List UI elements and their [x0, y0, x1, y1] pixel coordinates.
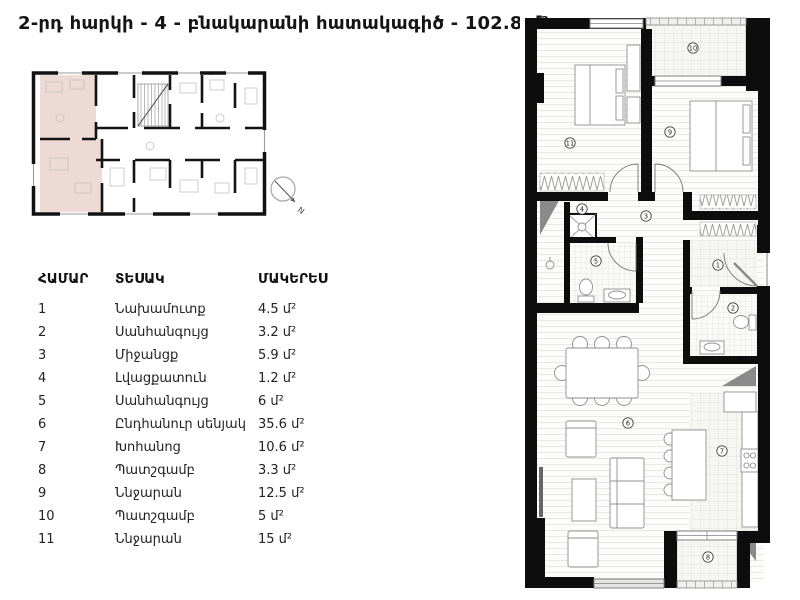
mini-floor-plan: [30, 68, 270, 220]
table-row: 6Ընդհանուր սենյակ35.6 մ²: [38, 413, 368, 436]
armchair: [566, 421, 596, 457]
room-marker-number: 9: [668, 128, 672, 136]
table-cell-number: 7: [38, 440, 115, 455]
fridge: [724, 392, 756, 412]
room-marker-number: 10: [689, 44, 697, 52]
sofa: [610, 458, 644, 528]
table-cell-type: Միջանցք: [115, 348, 258, 363]
washing-machine: [568, 214, 596, 240]
table-cell-type: Ննջարան: [115, 486, 258, 501]
table-row: 4Լվացքատուն1.2 մ²: [38, 367, 368, 390]
room-marker-number: 1: [716, 261, 720, 269]
tv: [539, 467, 543, 517]
toilet-tank: [578, 296, 594, 302]
table-cell-area: 15 մ²: [258, 532, 368, 547]
room-marker-number: 8: [706, 553, 710, 561]
table-cell-number: 10: [38, 509, 115, 524]
room-area-table: ՀԱՄԱՐ ՏԵՍԱԿ ՄԱԿԵՐԵՍ 1Նախամուտք4.5 մ²2Սան…: [38, 271, 368, 551]
table-cell-type: Պատշգամբ: [115, 463, 258, 478]
table-cell-type: Խոհանոց: [115, 440, 258, 455]
table-row: 1Նախամուտք4.5 մ²: [38, 298, 368, 321]
table-header-row: ՀԱՄԱՐ ՏԵՍԱԿ ՄԱԿԵՐԵՍ: [38, 271, 368, 298]
compass-icon: N: [266, 174, 316, 224]
room-marker-number: 11: [566, 139, 574, 147]
table-cell-area: 35.6 մ²: [258, 417, 368, 432]
table-cell-number: 8: [38, 463, 115, 478]
room-marker-number: 2: [731, 304, 735, 312]
table-cell-type: Սանհանգույց: [115, 325, 258, 340]
table-cell-number: 6: [38, 417, 115, 432]
room-marker-number: 6: [626, 419, 630, 427]
table-row: 3Միջանցք5.9 մ²: [38, 344, 368, 367]
table-row: 11Ննջարան15 մ²: [38, 528, 368, 551]
compass-north-label: N: [296, 205, 306, 216]
sink: [704, 343, 720, 351]
area-table-body: 1Նախամուտք4.5 մ²2Սանհանգույց3.2 մ²3Միջան…: [38, 298, 368, 551]
toilet-tank: [749, 315, 756, 330]
table-cell-area: 4.5 մ²: [258, 302, 368, 317]
highlighted-apartment: [40, 75, 102, 212]
coffee-table: [572, 479, 596, 521]
room-marker-number: 3: [644, 212, 648, 220]
table-cell-type: Պատշգամբ: [115, 509, 258, 524]
nightstand: [627, 97, 640, 123]
table-cell-type: Ընդհանուր սենյակ: [115, 417, 258, 432]
table-header-type: ՏԵՍԱԿ: [115, 271, 258, 298]
table-cell-type: Նախամուտք: [115, 302, 258, 317]
room-marker-number: 4: [580, 205, 584, 213]
table-cell-area: 3.2 մ²: [258, 325, 368, 340]
table-cell-number: 5: [38, 394, 115, 409]
table-cell-area: 5 մ²: [258, 509, 368, 524]
table-cell-area: 12.5 մ²: [258, 486, 368, 501]
table-row: 8Պատշգամբ3.3 մ²: [38, 459, 368, 482]
main-floor-plan: 1234567891011: [520, 15, 792, 590]
table-cell-number: 11: [38, 532, 115, 547]
table-cell-type: Սանհանգույց: [115, 394, 258, 409]
table-cell-area: 3.3 մ²: [258, 463, 368, 478]
table-row: 2Սանհանգույց3.2 մ²: [38, 321, 368, 344]
table-cell-number: 9: [38, 486, 115, 501]
table-cell-type: Լվացքատուն: [115, 371, 258, 386]
toilet: [734, 316, 749, 329]
table-cell-area: 6 մ²: [258, 394, 368, 409]
sink: [609, 291, 626, 299]
outside-mask: [770, 15, 792, 590]
dresser: [627, 45, 640, 91]
kitchen-island: [672, 430, 706, 500]
table-cell-number: 2: [38, 325, 115, 340]
dining-table: [566, 348, 638, 398]
floor-plan-page: 2-րդ հարկի - 4 - բնակարանի հատակագիծ - 1…: [0, 0, 800, 600]
entrance-floor: [690, 240, 757, 287]
mini-plan-stairs: [138, 84, 168, 126]
table-header-area: ՄԱԿԵՐԵՍ: [258, 271, 368, 298]
toilet: [580, 279, 593, 295]
table-header-number: ՀԱՄԱՐ: [38, 271, 115, 298]
outside-mask: [520, 15, 525, 590]
table-row: 9Ննջարան12.5 մ²: [38, 482, 368, 505]
room-marker-number: 5: [594, 257, 598, 265]
table-cell-area: 5.9 մ²: [258, 348, 368, 363]
table-row: 5Սանհանգույց6 մ²: [38, 390, 368, 413]
room-marker-number: 7: [720, 447, 724, 455]
table-cell-number: 4: [38, 371, 115, 386]
armchair: [568, 531, 598, 567]
table-cell-number: 3: [38, 348, 115, 363]
table-cell-number: 1: [38, 302, 115, 317]
stove: [741, 449, 758, 472]
table-row: 7Խոհանոց10.6 մ²: [38, 436, 368, 459]
page-title: 2-րդ հարկի - 4 - բնակարանի հատակագիծ - 1…: [18, 13, 549, 34]
table-cell-area: 1.2 մ²: [258, 371, 368, 386]
table-cell-area: 10.6 մ²: [258, 440, 368, 455]
table-row: 10Պատշգամբ5 մ²: [38, 505, 368, 528]
table-cell-type: Ննջարան: [115, 532, 258, 547]
